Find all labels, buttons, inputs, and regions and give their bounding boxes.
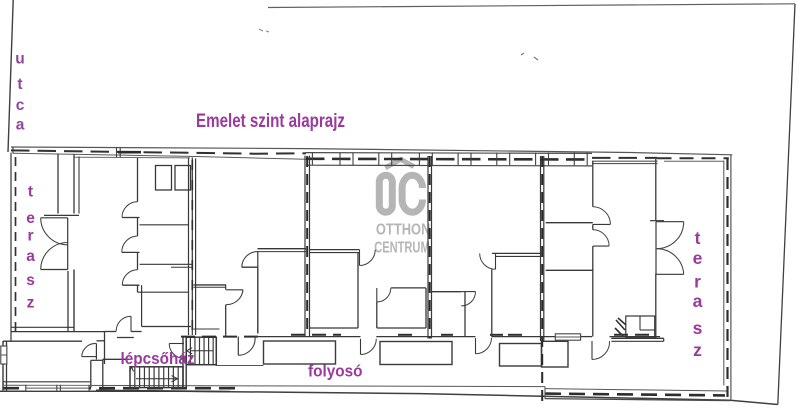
svg-text:z: z <box>693 340 702 360</box>
svg-text:z: z <box>27 295 35 312</box>
svg-text:a: a <box>26 248 35 265</box>
svg-text:r: r <box>27 228 33 245</box>
svg-text:a: a <box>693 291 703 311</box>
svg-text:OTTHON: OTTHON <box>376 222 431 239</box>
svg-text:s: s <box>26 272 35 289</box>
svg-text:r: r <box>694 271 701 291</box>
svg-text:e: e <box>693 248 703 268</box>
svg-text:t: t <box>28 184 33 201</box>
svg-text:u: u <box>15 51 24 68</box>
svg-text:a: a <box>16 117 25 134</box>
svg-text:CENTRUM: CENTRUM <box>374 240 430 257</box>
svg-text:Emelet szint alaprajz: Emelet szint alaprajz <box>196 110 345 132</box>
svg-text:lépcsőház: lépcsőház <box>121 349 195 368</box>
svg-text:e: e <box>26 210 35 227</box>
svg-text:folyosó: folyosó <box>308 362 363 381</box>
svg-text:c: c <box>16 97 25 114</box>
svg-text:s: s <box>693 318 703 338</box>
svg-text:t: t <box>695 228 701 248</box>
svg-text:t: t <box>17 76 22 93</box>
